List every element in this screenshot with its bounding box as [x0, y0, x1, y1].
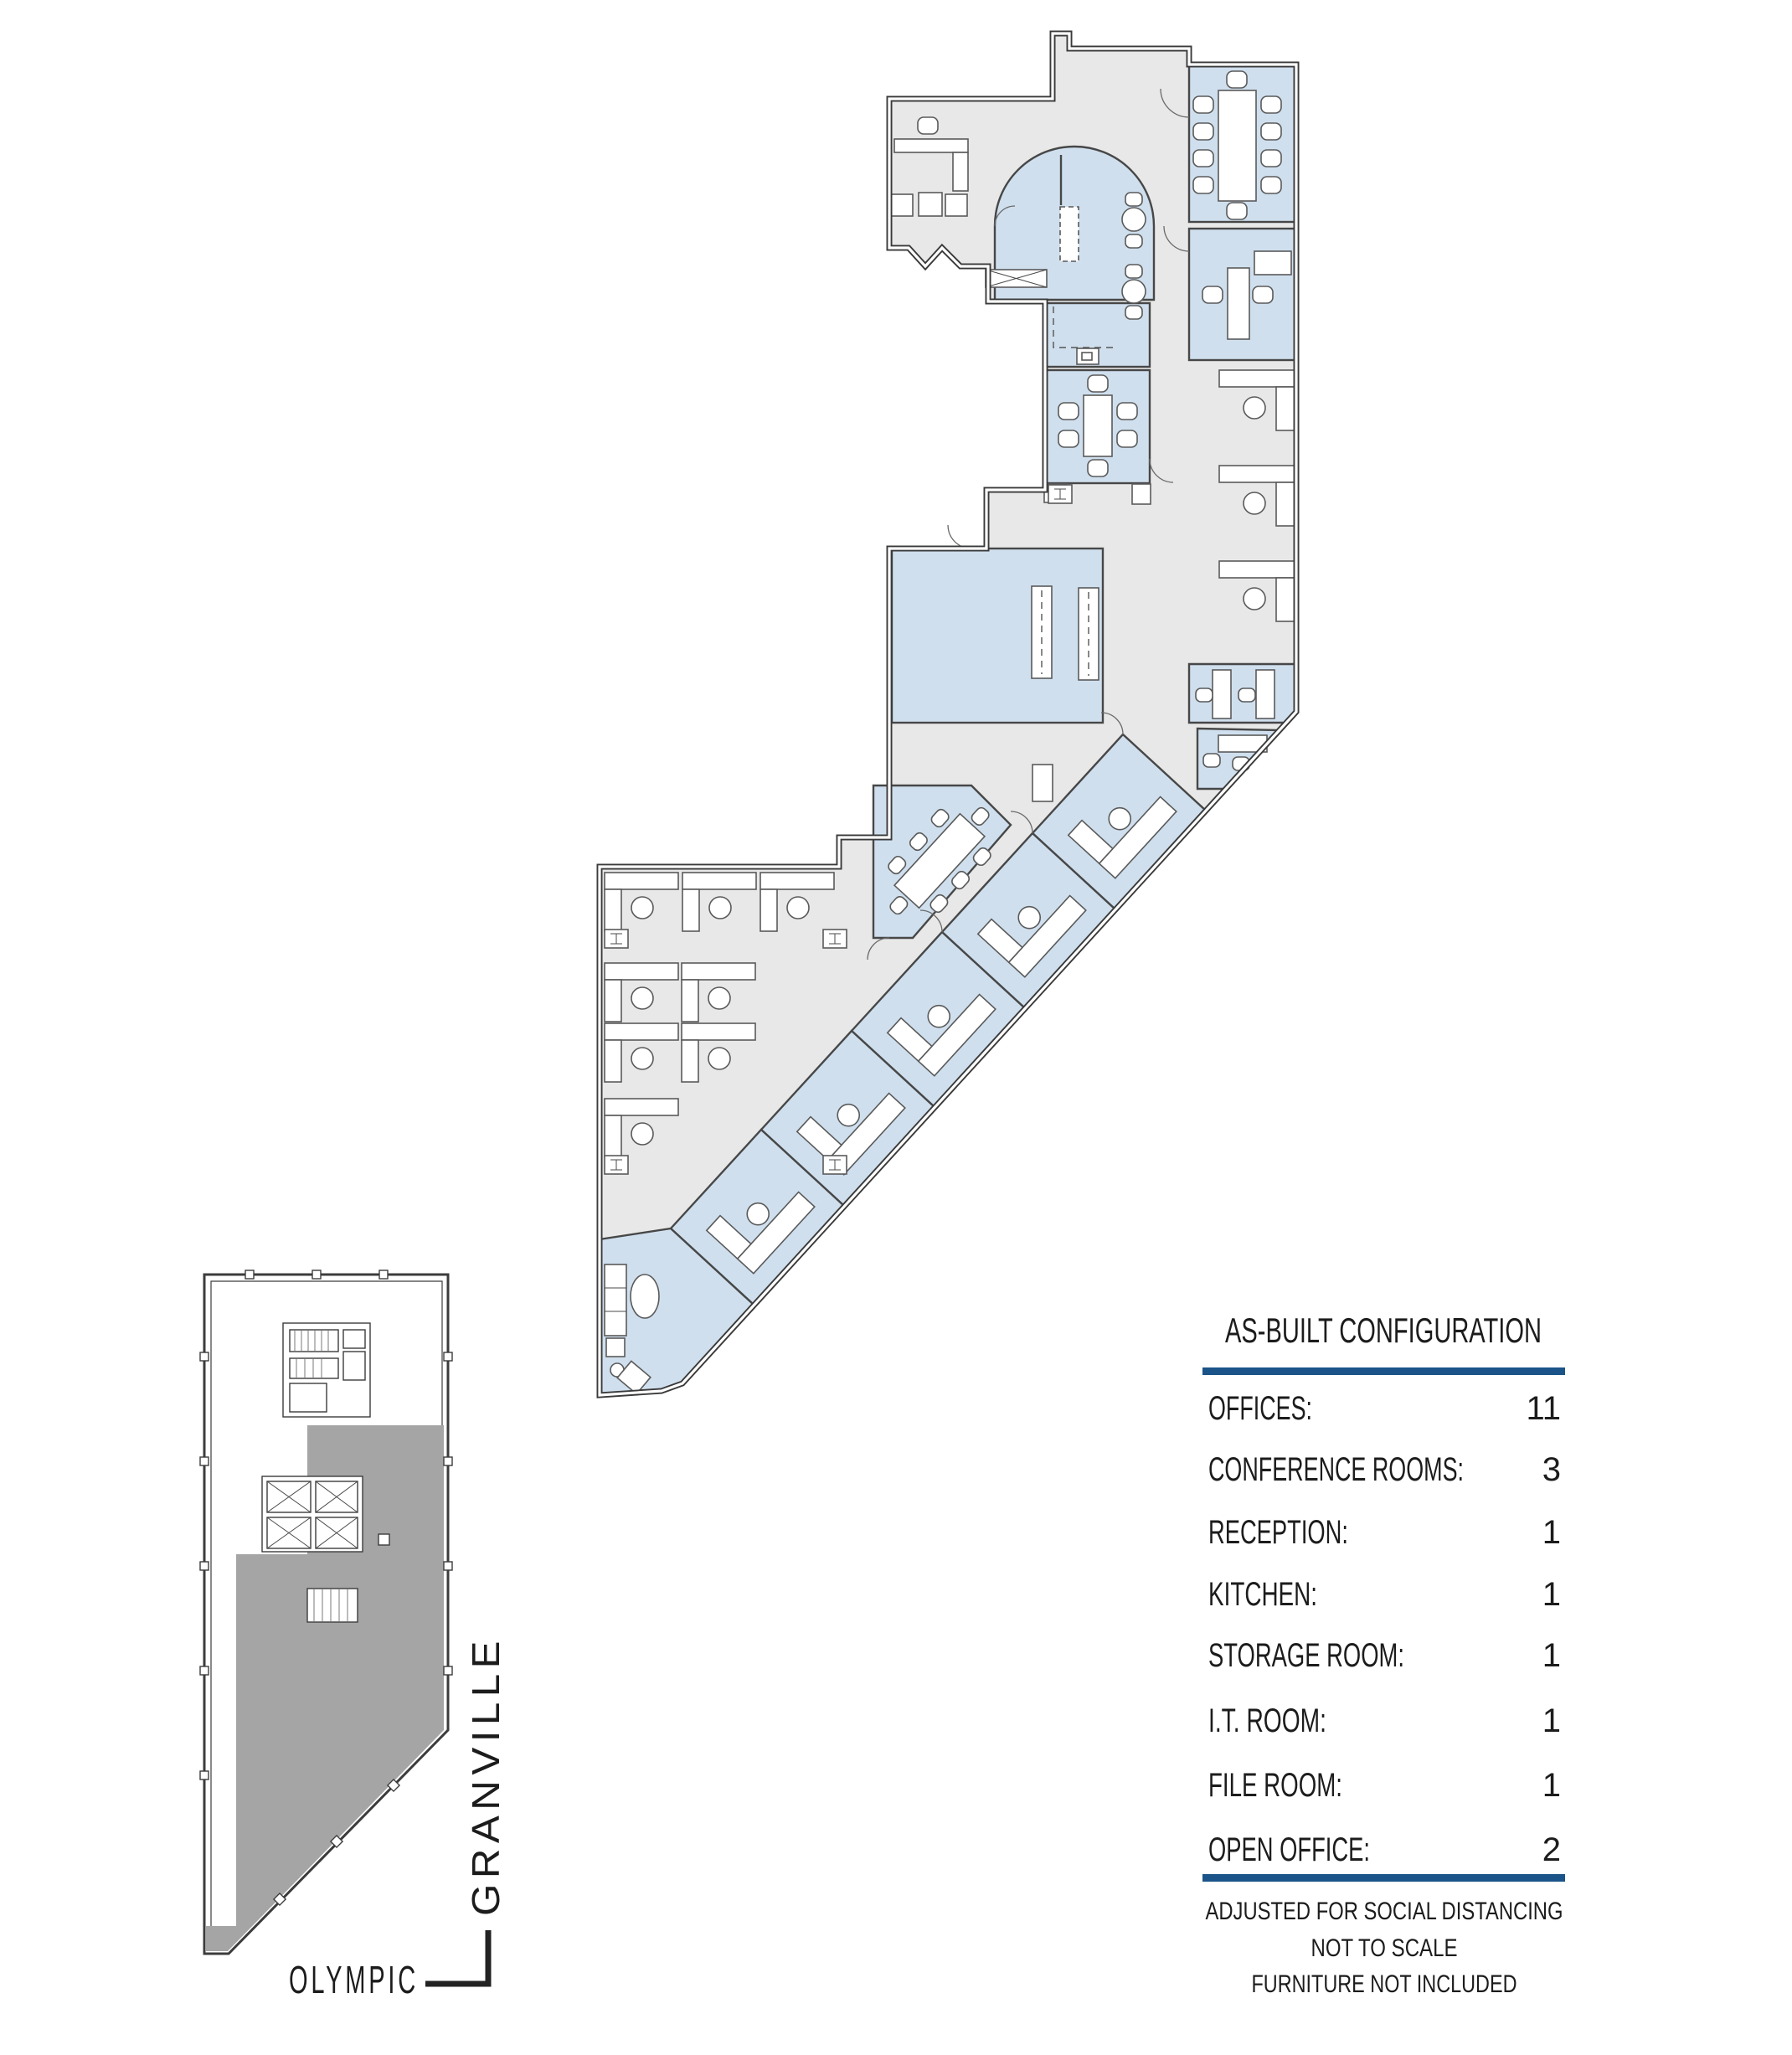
street-label-granville: GRANVILLE	[464, 1635, 507, 1916]
legend-row-value: 1	[1542, 1576, 1561, 1613]
legend-row-value: 1	[1542, 1637, 1561, 1674]
legend-row-value: 1	[1542, 1767, 1561, 1804]
legend-footnote: ADJUSTED FOR SOCIAL DISTANCING	[1206, 1898, 1563, 1925]
legend-row-label: OPEN OFFICE:	[1208, 1831, 1370, 1868]
legend-row-label: OFFICES:	[1208, 1390, 1312, 1427]
legend-row-label: STORAGE ROOM:	[1208, 1637, 1404, 1674]
plan-canvas: GRANVILLE OLYMPIC AS-BUILT CONFIGURATION…	[0, 0, 1792, 2055]
key-column	[378, 1534, 389, 1545]
street-corner-mark	[425, 1930, 488, 1984]
legend-row-label: CONFERENCE ROOMS:	[1208, 1451, 1464, 1488]
legend-footnote: NOT TO SCALE	[1311, 1934, 1458, 1962]
key-core-upper	[283, 1323, 370, 1417]
legend-rule-top	[1202, 1367, 1565, 1375]
legend-row-label: RECEPTION:	[1208, 1514, 1348, 1551]
legend-title: AS-BUILT CONFIGURATION	[1225, 1311, 1542, 1350]
room-file	[892, 549, 1103, 723]
legend-row-label: FILE ROOM:	[1208, 1767, 1342, 1804]
key-elevator-bank	[262, 1476, 363, 1552]
legend-row-label: KITCHEN:	[1208, 1576, 1317, 1613]
legend: AS-BUILT CONFIGURATION OFFICES: 11 CONFE…	[1202, 1311, 1565, 1998]
legend-row-value: 11	[1526, 1390, 1561, 1427]
street-label-olympic: OLYMPIC	[289, 1958, 419, 2001]
legend-row-label: I.T. ROOM:	[1208, 1702, 1326, 1739]
legend-footnotes: ADJUSTED FOR SOCIAL DISTANCING NOT TO SC…	[1206, 1898, 1563, 1998]
legend-rule-bottom	[1202, 1874, 1565, 1882]
key-plan: GRANVILLE OLYMPIC	[200, 1270, 507, 2001]
legend-row-value: 1	[1542, 1514, 1561, 1551]
legend-footnote: FURNITURE NOT INCLUDED	[1252, 1970, 1517, 1998]
floor-plan-sheet: GRANVILLE OLYMPIC AS-BUILT CONFIGURATION…	[0, 0, 1792, 2055]
main-floor-plan	[600, 33, 1296, 1395]
legend-row-value: 2	[1542, 1831, 1561, 1868]
legend-row-value: 3	[1542, 1451, 1561, 1488]
key-stair-lower	[307, 1589, 358, 1622]
legend-rows: OFFICES: 11 CONFERENCE ROOMS: 3 RECEPTIO…	[1208, 1390, 1561, 1868]
legend-row-value: 1	[1542, 1702, 1561, 1739]
